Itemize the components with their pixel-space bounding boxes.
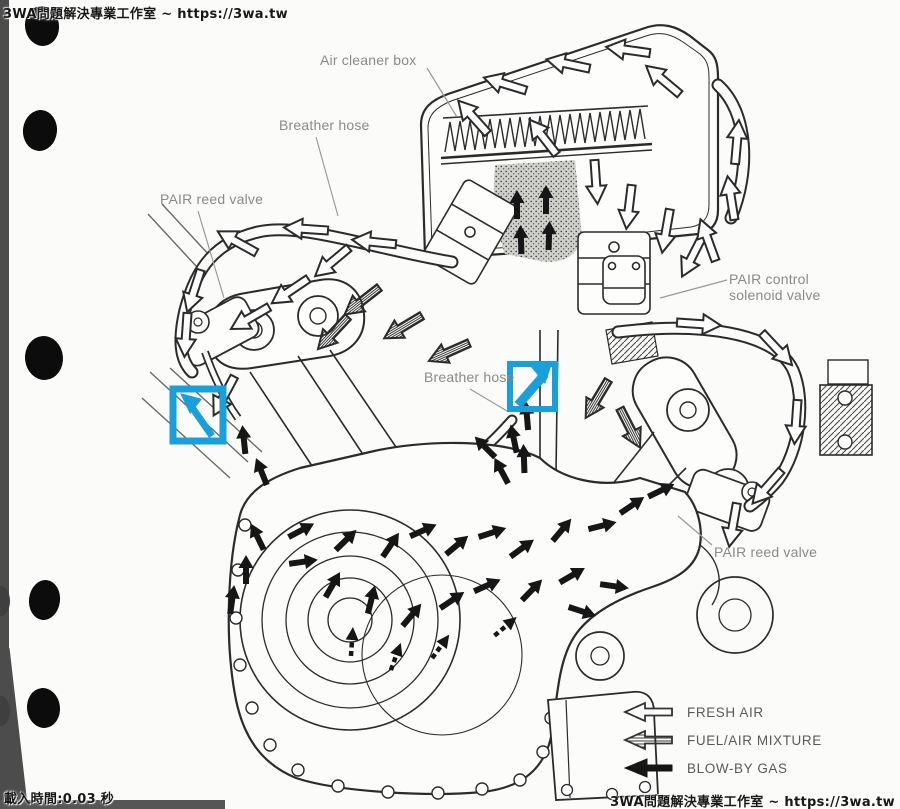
label-air-cleaner-box: Air cleaner box — [320, 52, 416, 68]
legend-label: FUEL/AIR MIXTURE — [687, 733, 822, 748]
engine-mount-right — [820, 360, 872, 455]
label-breather-hose-center: Breather hose — [424, 369, 515, 385]
pair-control-solenoid-valve — [603, 256, 645, 304]
label-line: solenoid valve — [729, 287, 821, 303]
legend-label: FRESH AIR — [687, 705, 764, 720]
legend-label: BLOW-BY GAS — [687, 761, 788, 776]
label-pair-reed-valve-right: PAIR reed valve — [714, 544, 817, 560]
watermark-bottom-right: 3WA問題解決專業工作室 ~ https://3wa.tw — [610, 791, 895, 809]
legend-item-fresh-air: FRESH AIR — [622, 700, 764, 724]
blow-by-gas-arrow-icon — [622, 756, 674, 780]
label-breather-hose-top: Breather hose — [279, 117, 370, 133]
watermark-bottom-left: 載入時間:0.03 秒 — [4, 788, 114, 807]
label-pair-control-solenoid-valve: PAIR control solenoid valve — [729, 271, 821, 303]
highlight-marker-right — [510, 364, 555, 409]
engine-airflow-diagram — [0, 0, 900, 809]
fuel-air-mixture-arrow-icon — [622, 728, 674, 752]
watermark-top-left: 3WA問題解決專業工作室 ~ https://3wa.tw — [3, 3, 288, 22]
legend-item-fuel-air-mixture: FUEL/AIR MIXTURE — [622, 728, 822, 752]
scanned-manual-page: 3WA問題解決專業工作室 ~ https://3wa.tw 載入時間:0.03 … — [0, 0, 900, 809]
legend-item-blow-by-gas: BLOW-BY GAS — [622, 756, 788, 780]
fresh-air-arrow-icon — [622, 700, 674, 724]
label-line: PAIR control — [729, 271, 821, 287]
label-pair-reed-valve-left: PAIR reed valve — [160, 191, 263, 207]
